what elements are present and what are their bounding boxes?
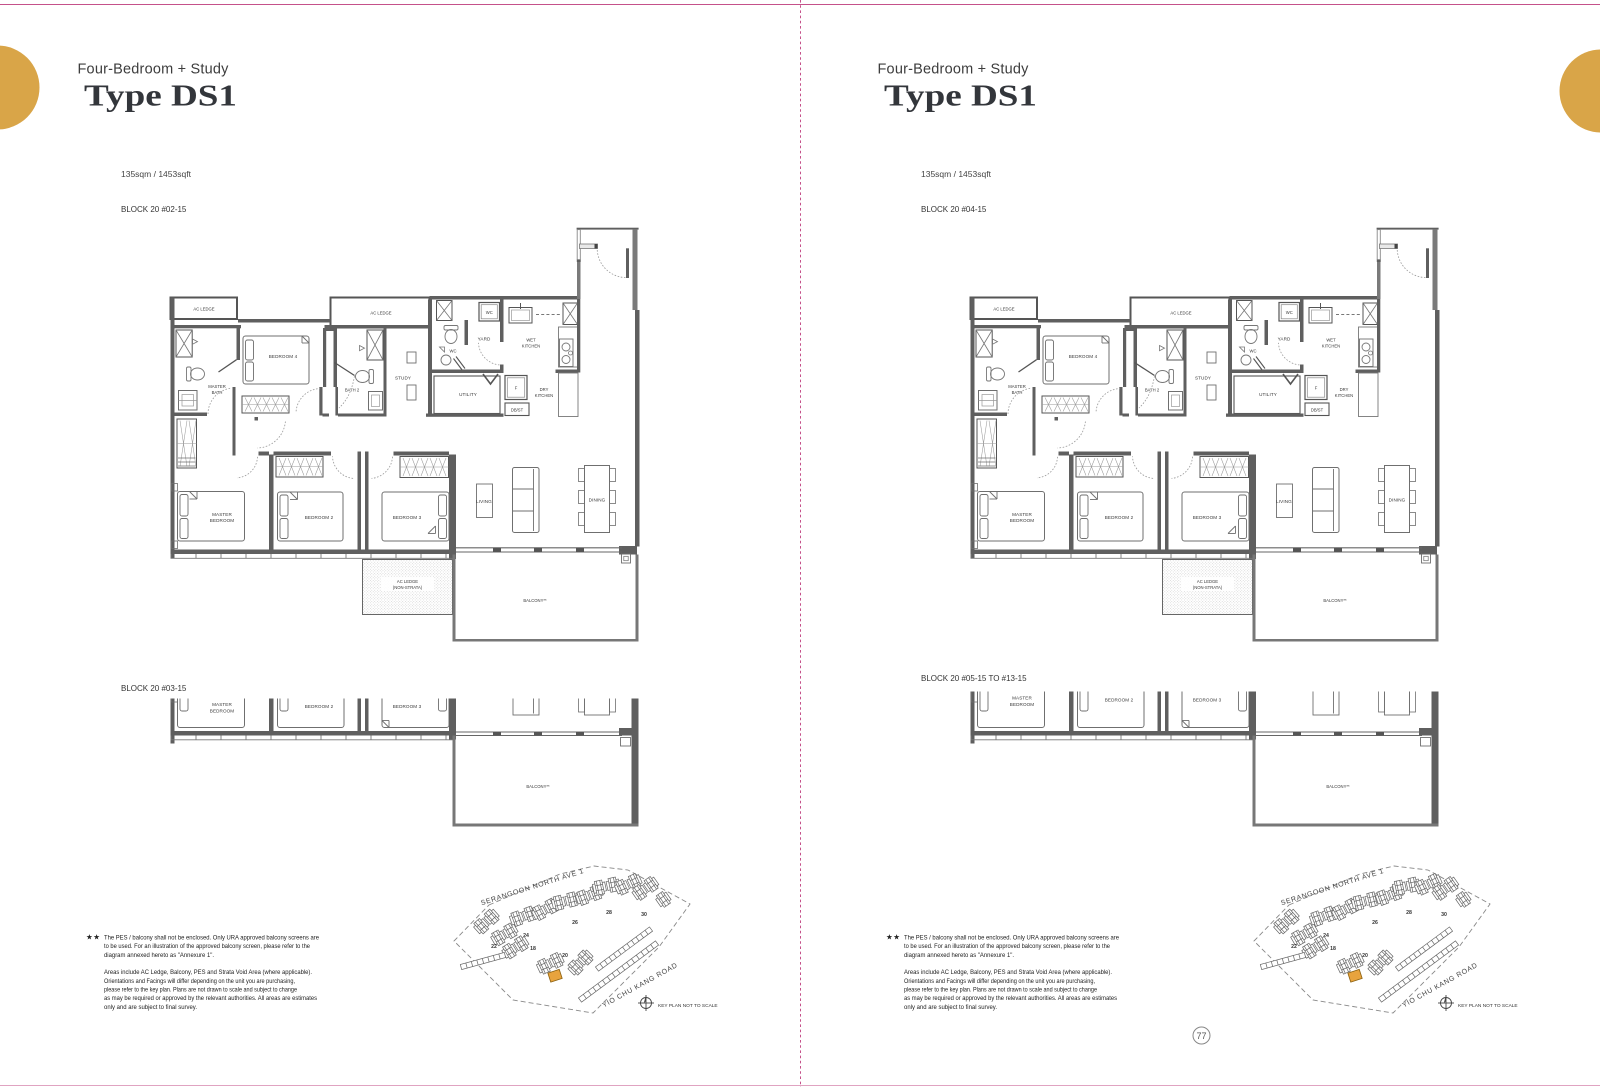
svg-text:BLOCK 20 #05-15 TO #13-15: BLOCK 20 #05-15 TO #13-15 [921,674,1027,683]
svg-text:77: 77 [1196,1031,1206,1041]
svg-text:BLOCK 20 #04-15: BLOCK 20 #04-15 [921,205,987,214]
svg-text:BLOCK 20 #02-15: BLOCK 20 #02-15 [121,205,187,214]
svg-text:BLOCK 20 #03-15: BLOCK 20 #03-15 [121,684,187,693]
